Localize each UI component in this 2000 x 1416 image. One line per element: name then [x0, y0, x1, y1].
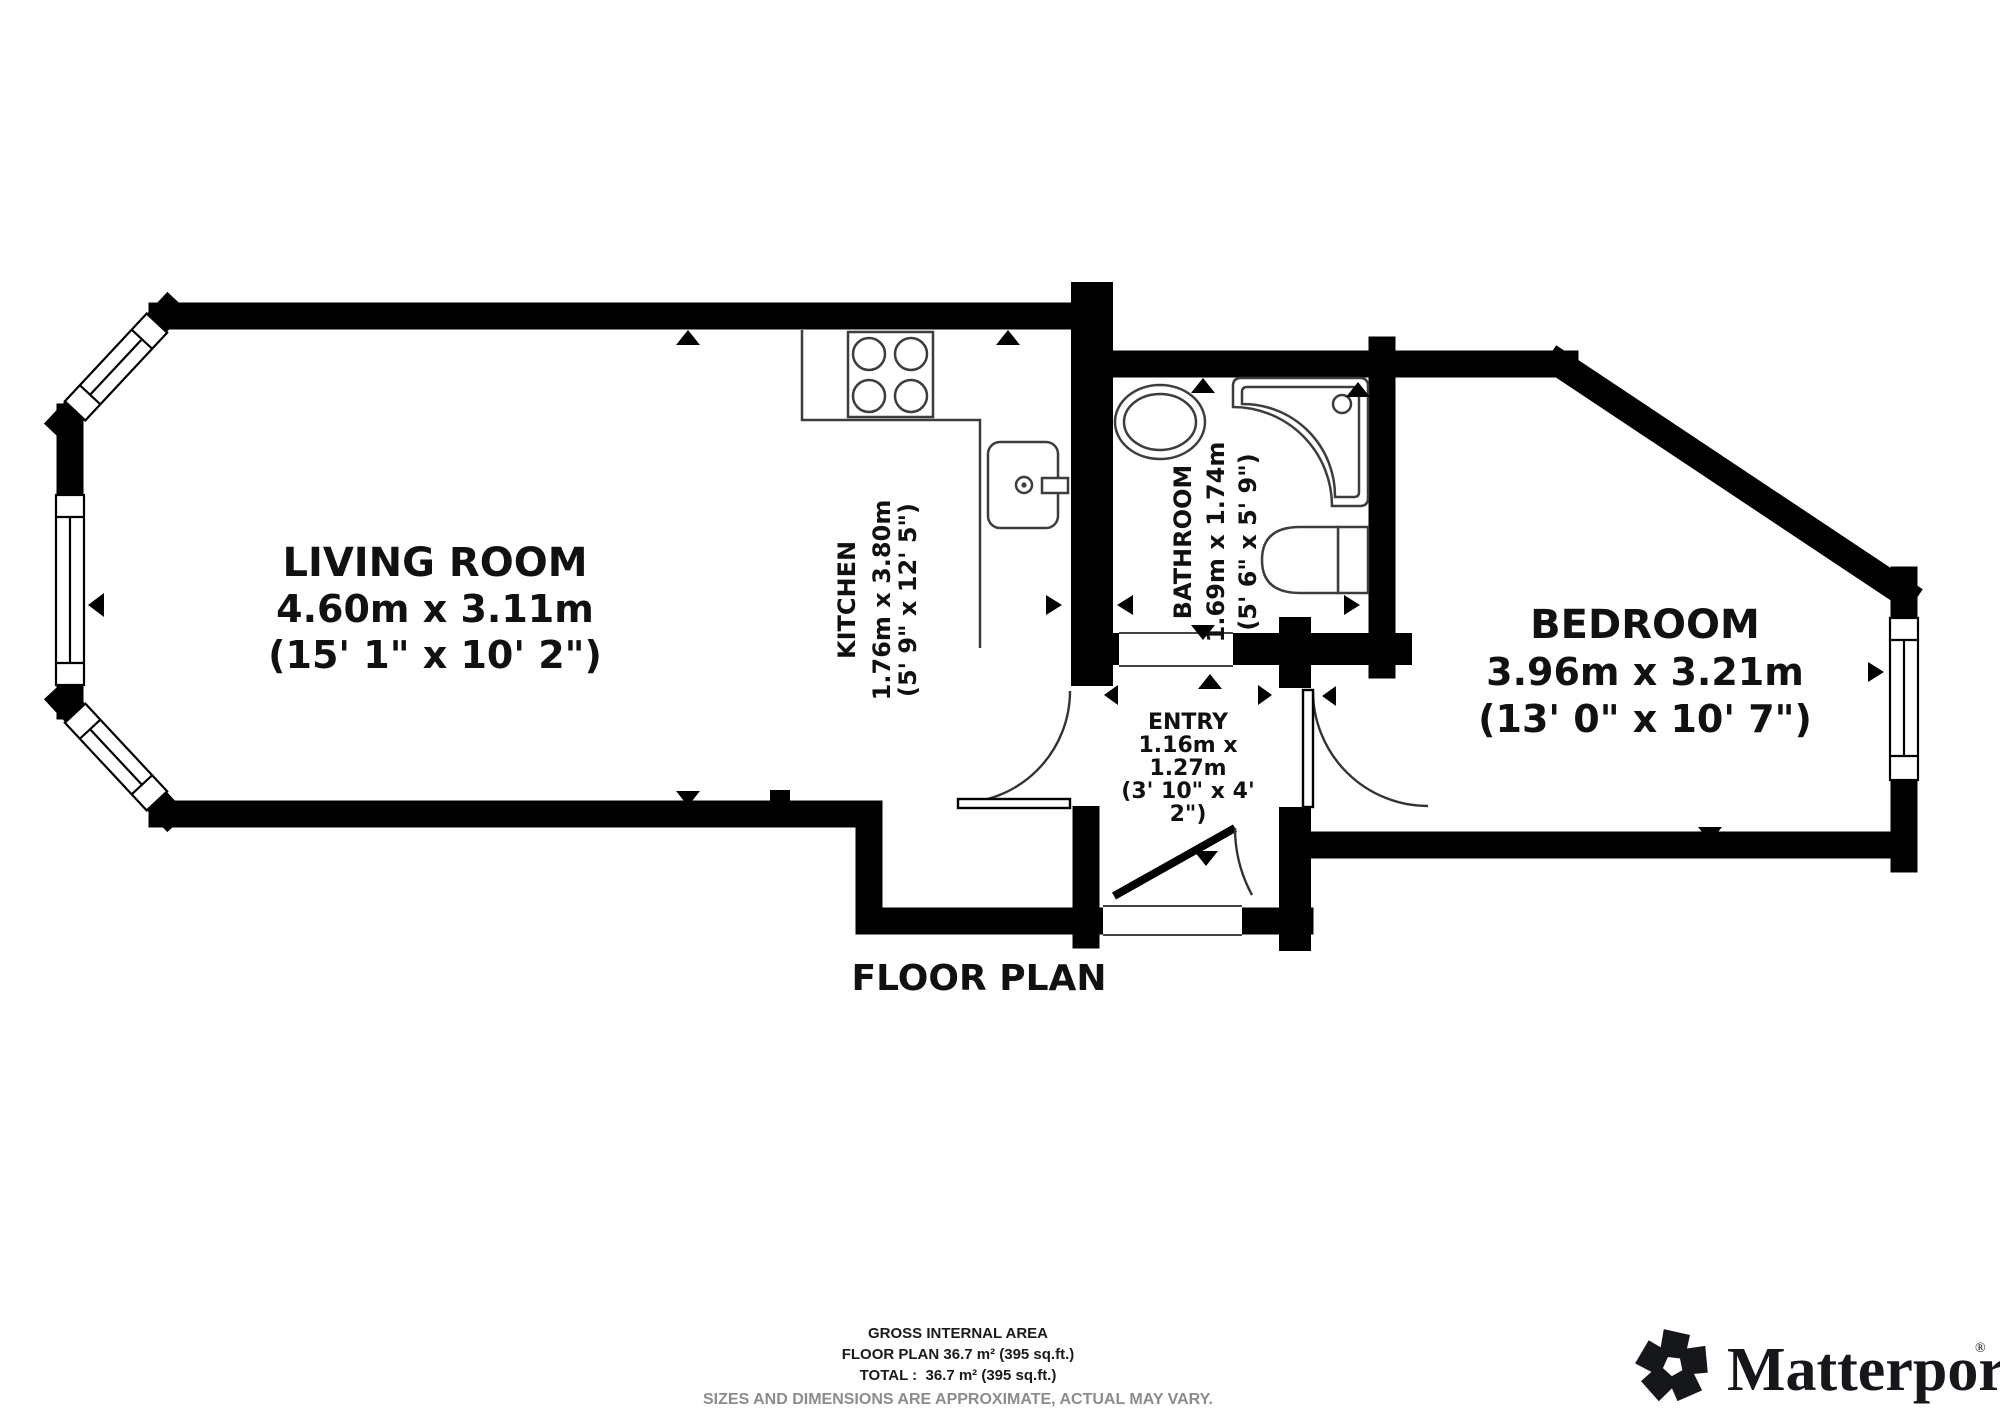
living-entry-opening — [1070, 686, 1103, 806]
arrow-up — [676, 330, 700, 345]
room-name: LIVING ROOM — [282, 540, 587, 586]
room-metric-2: 1.27m — [1149, 756, 1226, 781]
kitchen-label: KITCHEN 1.76m x 3.80m (5' 9" x 12' 5") — [833, 500, 922, 701]
arrow-left — [1322, 686, 1336, 706]
door-swing-arc — [1313, 691, 1428, 806]
room-imperial: (5' 6" x 5' 9") — [1234, 453, 1262, 630]
bedroom-label: BEDROOM 3.96m x 3.21m (13' 0" x 10' 7") — [1478, 602, 1812, 741]
room-metric: 1.76m x 3.80m — [868, 500, 896, 701]
door-leaf — [1303, 690, 1313, 807]
stove-icon — [848, 332, 933, 417]
arrow-right — [1046, 595, 1062, 615]
room-imperial-1: (3' 10" x 4' — [1121, 779, 1254, 804]
room-imperial: (5' 9" x 12' 5") — [894, 503, 922, 697]
floor-plan-drawing: LIVING ROOM 4.60m x 3.11m (15' 1" x 10' … — [0, 0, 2000, 1416]
room-metric-1: 1.16m x — [1138, 733, 1237, 758]
room-name: BEDROOM — [1530, 602, 1760, 648]
arrow-left — [1117, 595, 1133, 615]
room-metric: 1.69m x 1.74m — [1202, 442, 1230, 643]
room-metric: 4.60m x 3.11m — [276, 587, 594, 631]
front-door-leaf — [1114, 828, 1235, 896]
arrow-right — [1344, 595, 1360, 615]
floor-plan-area: FLOOR PLAN 36.7 m² (395 sq.ft.) — [842, 1346, 1075, 1363]
arrow-down — [1194, 851, 1218, 866]
registered-mark: ® — [1975, 1341, 1986, 1356]
sink-icon — [988, 442, 1068, 528]
bathroom-label: BATHROOM 1.69m x 1.74m (5' 6" x 5' 9") — [1169, 442, 1262, 643]
door-leaf — [958, 799, 1070, 808]
room-imperial: (13' 0" x 10' 7") — [1478, 697, 1812, 741]
logo-wordmark: Matterport — [1727, 1336, 2000, 1404]
arrow-right — [1258, 685, 1272, 705]
living-room-label: LIVING ROOM 4.60m x 3.11m (15' 1" x 10' … — [268, 540, 602, 677]
disclaimer: SIZES AND DIMENSIONS ARE APPROXIMATE, AC… — [703, 1391, 1213, 1408]
floor-plan-page: LIVING ROOM 4.60m x 3.11m (15' 1" x 10' … — [0, 0, 2000, 1416]
wall-tick — [770, 790, 790, 801]
matterport-mark-icon — [1623, 1319, 1726, 1416]
basin-icon — [1115, 385, 1205, 459]
room-metric: 3.96m x 3.21m — [1486, 650, 1804, 694]
plan-title: FLOOR PLAN — [851, 958, 1106, 999]
room-name: ENTRY — [1148, 710, 1229, 735]
matterport-logo: Matterport ® — [1623, 1319, 2000, 1416]
front-door-swing-arc — [1235, 828, 1252, 895]
arrow-up — [1198, 674, 1222, 689]
bay-window-lower — [65, 704, 167, 811]
arrow-right — [1868, 662, 1884, 682]
gross-internal-area: GROSS INTERNAL AREA — [868, 1325, 1048, 1342]
entry-label: ENTRY 1.16m x 1.27m (3' 10" x 4' 2") — [1121, 710, 1254, 827]
bay-window-upper — [65, 314, 167, 421]
toilet-icon — [1262, 527, 1368, 593]
room-name: KITCHEN — [833, 541, 861, 659]
bedroom-window — [1890, 618, 1918, 780]
room-name: BATHROOM — [1169, 465, 1197, 620]
total-area: TOTAL : 36.7 m² (395 sq.ft.) — [860, 1367, 1057, 1384]
arrow-left — [1104, 685, 1118, 705]
room-imperial: (15' 1" x 10' 2") — [268, 633, 602, 677]
arrow-up — [1191, 378, 1215, 393]
footer: GROSS INTERNAL AREA FLOOR PLAN 36.7 m² (… — [703, 1325, 1213, 1408]
arrow-up — [996, 330, 1020, 345]
living-room-window — [56, 495, 84, 685]
door-swing-arc — [958, 691, 1070, 803]
room-imperial-2: 2") — [1170, 802, 1207, 827]
arrow-left — [88, 593, 104, 617]
